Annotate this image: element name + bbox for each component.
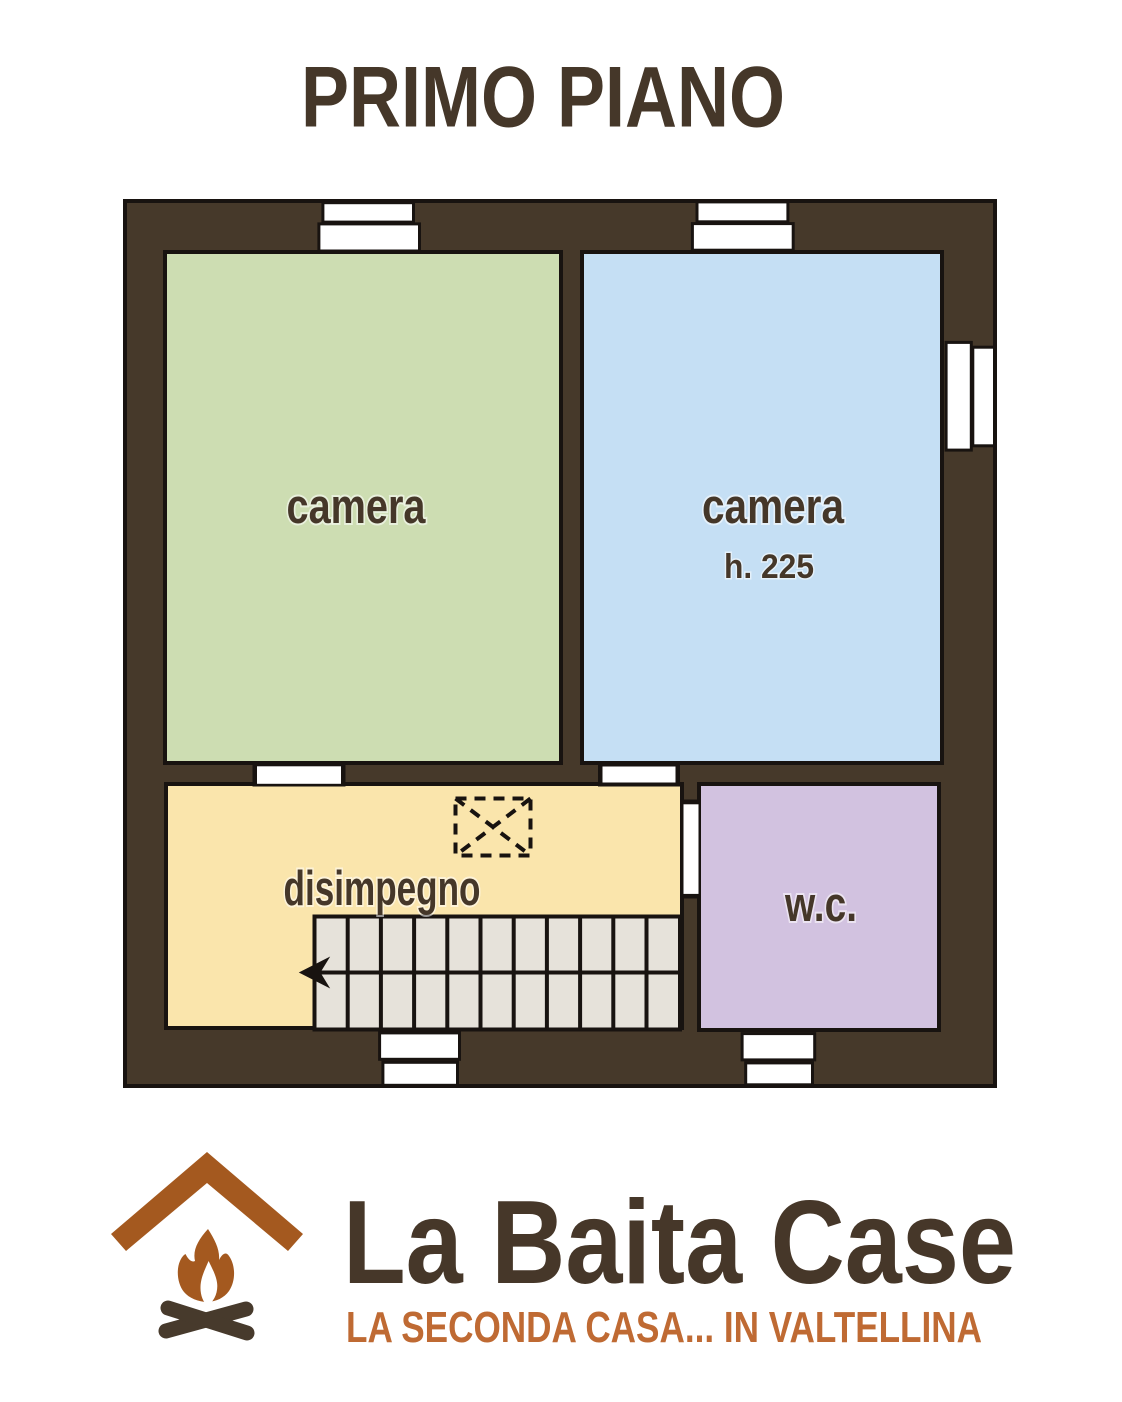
svg-text:camera: camera: [702, 480, 845, 534]
svg-text:PRIMO PIANO: PRIMO PIANO: [301, 50, 785, 146]
svg-text:La Baita Case: La Baita Case: [343, 1176, 1016, 1309]
svg-text:camera: camera: [287, 480, 427, 534]
svg-text:h. 225: h. 225: [724, 548, 814, 586]
svg-text:LA SECONDA CASA... IN VALTELLI: LA SECONDA CASA... IN VALTELLINA: [346, 1303, 982, 1352]
svg-text:w.c.: w.c.: [784, 878, 857, 932]
svg-text:disimpegno: disimpegno: [284, 862, 481, 916]
